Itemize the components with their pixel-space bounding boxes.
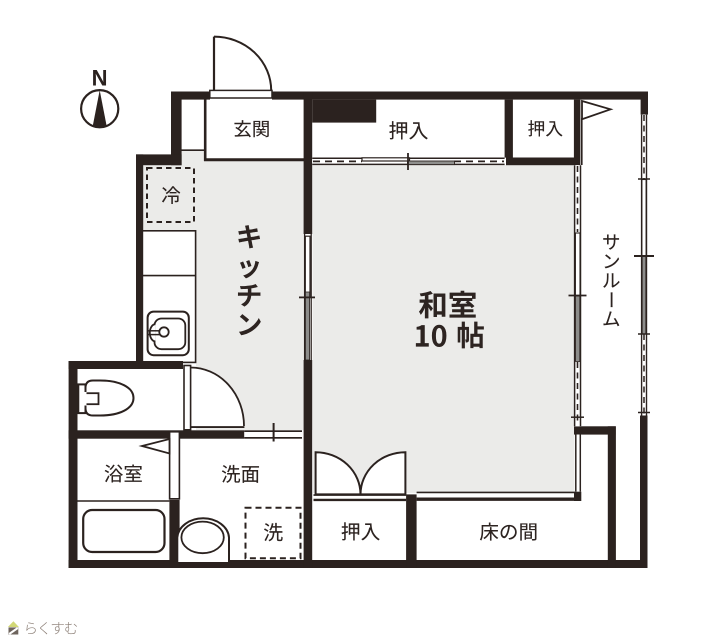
svg-text:N: N [92,65,108,90]
